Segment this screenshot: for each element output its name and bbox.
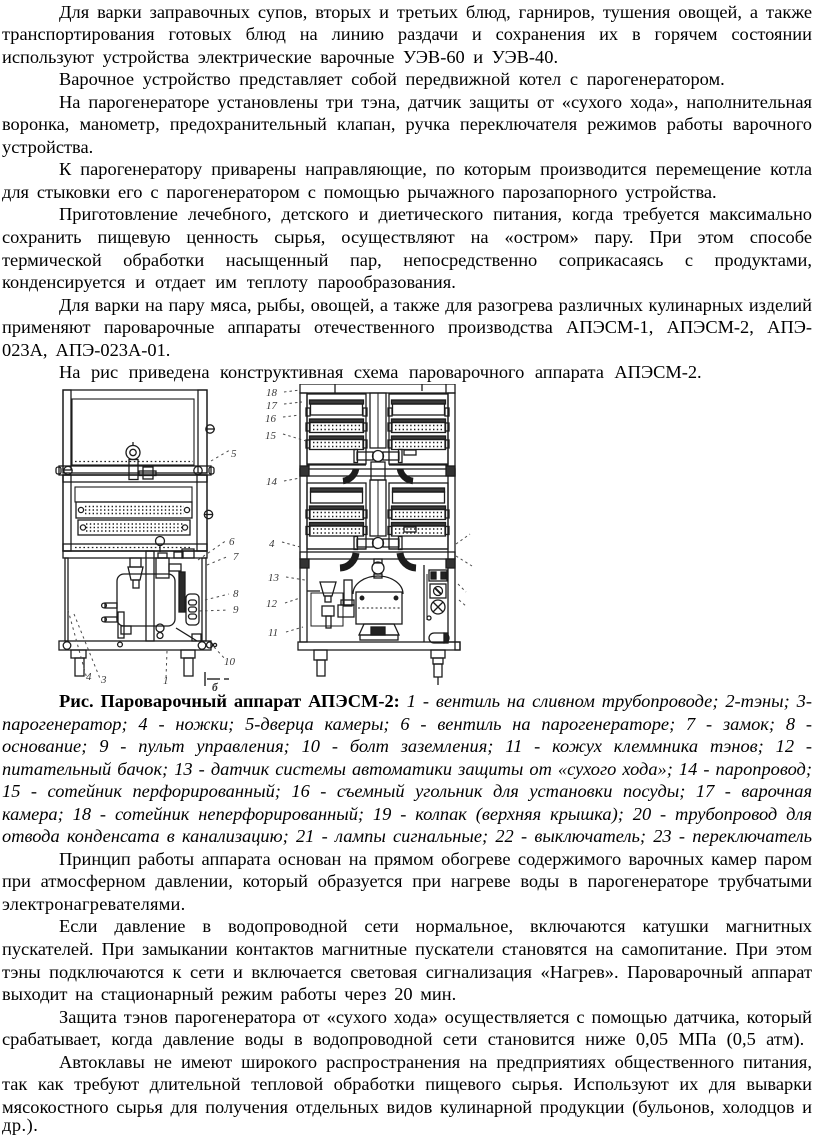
svg-text:7: 7 [233, 551, 239, 563]
svg-text:12: 12 [266, 598, 278, 610]
svg-text:18: 18 [266, 387, 278, 399]
svg-text:4: 4 [86, 671, 92, 683]
svg-text:8: 8 [233, 588, 239, 600]
svg-text:15: 15 [265, 430, 277, 442]
svg-text:6: 6 [229, 536, 235, 548]
svg-text:1: 1 [163, 675, 169, 687]
svg-text:17: 17 [266, 400, 278, 412]
svg-text:16: 16 [265, 413, 277, 425]
svg-text:14: 14 [266, 476, 278, 488]
svg-text:9: 9 [233, 604, 239, 616]
svg-text:10: 10 [224, 656, 236, 668]
svg-text:5: 5 [231, 448, 237, 460]
svg-text:3: 3 [100, 674, 107, 686]
svg-text:4: 4 [269, 538, 275, 550]
svg-text:11: 11 [268, 627, 278, 639]
svg-text:13: 13 [268, 572, 280, 584]
